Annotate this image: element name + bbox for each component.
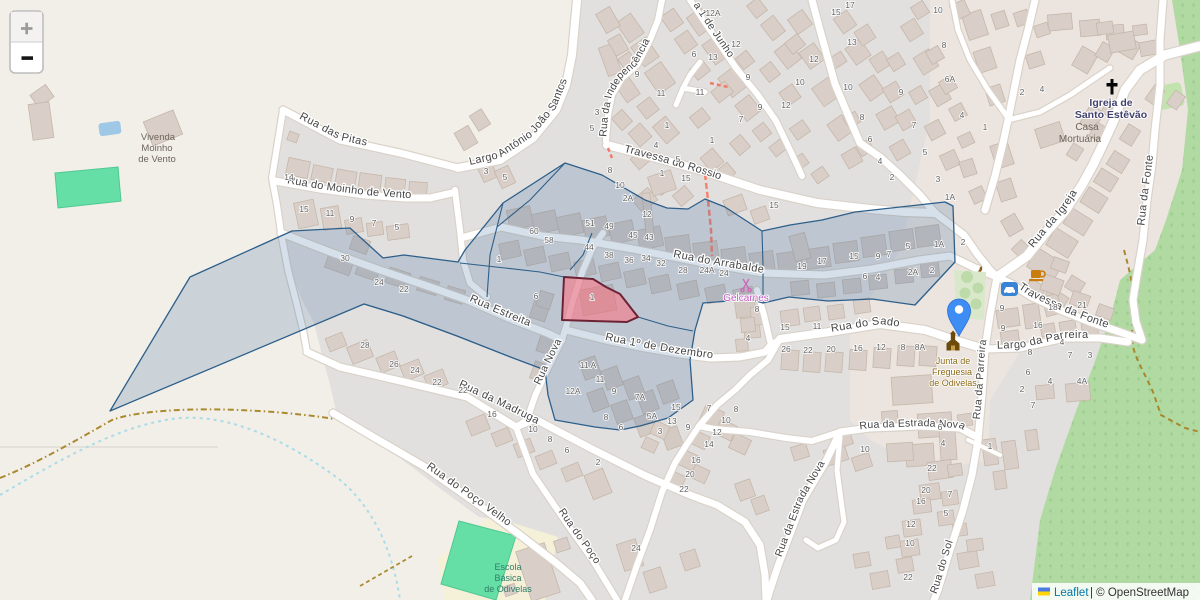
svg-text:10: 10 [615, 180, 625, 190]
svg-text:5: 5 [906, 241, 911, 251]
svg-text:6: 6 [868, 134, 873, 144]
svg-text:8: 8 [1028, 347, 1033, 357]
svg-text:1: 1 [590, 292, 595, 302]
svg-text:21: 21 [1077, 300, 1087, 310]
svg-text:7: 7 [1068, 350, 1073, 360]
svg-text:15: 15 [299, 204, 309, 214]
svg-text:6: 6 [565, 445, 570, 455]
svg-text:7A: 7A [635, 392, 646, 402]
svg-text:58: 58 [544, 235, 554, 245]
svg-text:1: 1 [665, 120, 670, 130]
svg-text:9: 9 [1001, 323, 1006, 333]
svg-text:34: 34 [641, 253, 651, 263]
svg-text:15: 15 [831, 7, 841, 17]
svg-text:12: 12 [906, 519, 916, 529]
svg-text:7: 7 [707, 403, 712, 413]
svg-text:9: 9 [746, 72, 751, 82]
svg-text:9: 9 [876, 251, 881, 261]
svg-text:10: 10 [860, 444, 870, 454]
svg-text:22: 22 [679, 484, 689, 494]
svg-text:16: 16 [487, 409, 497, 419]
svg-text:1: 1 [988, 441, 993, 451]
svg-text:11 A: 11 A [580, 360, 597, 370]
svg-text:11: 11 [326, 208, 335, 218]
svg-text:Igreja de: Igreja de [1089, 97, 1132, 109]
svg-text:10: 10 [905, 538, 915, 548]
svg-text:9: 9 [758, 102, 763, 112]
svg-text:5: 5 [395, 222, 400, 232]
svg-text:4: 4 [960, 110, 965, 120]
svg-text:2: 2 [1020, 384, 1025, 394]
svg-text:4: 4 [654, 140, 659, 150]
svg-text:de Odivelas: de Odivelas [929, 378, 977, 388]
svg-text:9: 9 [612, 386, 617, 396]
svg-text:15: 15 [849, 251, 859, 261]
svg-text:8: 8 [608, 165, 613, 175]
svg-text:4: 4 [941, 438, 946, 448]
svg-text:10: 10 [528, 424, 538, 434]
svg-text:7: 7 [948, 489, 953, 499]
svg-text:1: 1 [497, 254, 502, 264]
svg-text:8: 8 [755, 304, 760, 314]
svg-text:30: 30 [340, 253, 350, 263]
svg-text:4: 4 [746, 333, 751, 343]
svg-text:8: 8 [860, 112, 865, 122]
svg-text:5: 5 [944, 508, 949, 518]
svg-text:6: 6 [863, 271, 868, 281]
svg-text:12: 12 [712, 427, 722, 437]
svg-text:18: 18 [1048, 302, 1058, 312]
svg-text:17: 17 [845, 0, 855, 10]
svg-text:49: 49 [604, 221, 614, 231]
svg-text:5: 5 [590, 123, 595, 133]
svg-text:24: 24 [410, 365, 420, 375]
svg-text:9: 9 [899, 87, 904, 97]
svg-text:12: 12 [731, 39, 741, 49]
svg-text:4: 4 [876, 272, 881, 282]
svg-text:1: 1 [983, 122, 988, 132]
svg-text:2A: 2A [623, 193, 634, 203]
svg-text:15: 15 [671, 402, 681, 412]
svg-text:6: 6 [534, 291, 539, 301]
svg-text:22: 22 [458, 385, 468, 395]
svg-text:26: 26 [781, 344, 791, 354]
svg-text:| © OpenStreetMap: | © OpenStreetMap [1090, 587, 1189, 599]
svg-text:12: 12 [781, 100, 791, 110]
svg-text:Vivenda: Vivenda [141, 132, 176, 143]
svg-text:2: 2 [596, 457, 601, 467]
svg-text:13: 13 [708, 52, 718, 62]
svg-text:Básica: Básica [494, 573, 521, 583]
svg-text:19: 19 [797, 261, 807, 271]
svg-text:13: 13 [667, 416, 677, 426]
svg-text:1A: 1A [934, 239, 945, 249]
svg-text:3: 3 [595, 107, 600, 117]
svg-text:4: 4 [878, 156, 883, 166]
svg-text:22: 22 [399, 284, 409, 294]
svg-text:Santo Estêvão: Santo Estêvão [1075, 109, 1147, 121]
svg-text:Gelcarnes: Gelcarnes [723, 293, 769, 304]
svg-text:6: 6 [1026, 367, 1031, 377]
svg-text:5: 5 [676, 154, 681, 164]
svg-text:60: 60 [529, 226, 539, 236]
svg-text:8: 8 [604, 412, 609, 422]
svg-text:4: 4 [1048, 376, 1053, 386]
svg-text:10: 10 [721, 415, 731, 425]
svg-text:11: 11 [596, 374, 605, 384]
svg-text:2: 2 [890, 172, 895, 182]
svg-text:Junta de: Junta de [936, 356, 971, 366]
svg-text:17: 17 [817, 256, 827, 266]
svg-text:7: 7 [912, 120, 917, 130]
svg-text:Mortuária: Mortuária [1059, 134, 1102, 145]
svg-text:8: 8 [901, 342, 906, 352]
svg-text:8: 8 [942, 40, 947, 50]
svg-text:11: 11 [813, 321, 822, 331]
svg-text:12: 12 [876, 342, 886, 352]
svg-text:14: 14 [284, 172, 294, 182]
svg-text:10: 10 [843, 82, 853, 92]
svg-text:Moinho: Moinho [141, 143, 172, 154]
svg-text:20: 20 [685, 469, 695, 479]
svg-text:7: 7 [1031, 400, 1036, 410]
svg-text:9: 9 [1000, 303, 1005, 313]
svg-text:de Vento: de Vento [138, 154, 176, 165]
svg-text:24A: 24A [699, 265, 714, 275]
svg-text:22: 22 [803, 345, 813, 355]
svg-text:6: 6 [692, 49, 697, 59]
svg-text:28: 28 [678, 265, 688, 275]
svg-text:22: 22 [432, 377, 442, 387]
svg-text:16: 16 [916, 496, 926, 506]
svg-text:10: 10 [795, 77, 805, 87]
svg-text:12A: 12A [565, 386, 580, 396]
svg-text:4: 4 [1060, 337, 1065, 347]
svg-text:7: 7 [739, 114, 744, 124]
svg-text:43: 43 [644, 232, 654, 242]
svg-text:36: 36 [624, 255, 634, 265]
svg-text:6: 6 [619, 422, 624, 432]
svg-text:Escola: Escola [494, 562, 521, 572]
svg-text:8: 8 [734, 404, 739, 414]
svg-text:7: 7 [887, 249, 892, 259]
svg-text:11: 11 [657, 88, 666, 98]
svg-text:1: 1 [660, 168, 665, 178]
svg-text:24: 24 [719, 268, 729, 278]
svg-text:1: 1 [710, 135, 715, 145]
svg-text:12A: 12A [705, 8, 720, 18]
svg-text:20: 20 [921, 485, 931, 495]
svg-text:28: 28 [360, 340, 370, 350]
svg-text:12: 12 [809, 54, 819, 64]
svg-text:3: 3 [1088, 350, 1093, 360]
svg-text:32: 32 [656, 258, 666, 268]
svg-text:5: 5 [923, 147, 928, 157]
svg-text:1A: 1A [945, 192, 956, 202]
svg-text:6: 6 [938, 422, 943, 432]
svg-text:24: 24 [631, 543, 641, 553]
svg-text:3: 3 [484, 166, 489, 176]
svg-text:Casa: Casa [1075, 122, 1099, 133]
svg-text:15: 15 [780, 322, 790, 332]
svg-text:24: 24 [374, 277, 384, 287]
svg-text:7: 7 [372, 218, 377, 228]
svg-text:44: 44 [584, 242, 594, 252]
svg-text:5: 5 [503, 172, 508, 182]
svg-text:15: 15 [681, 173, 691, 183]
svg-text:4: 4 [1040, 84, 1045, 94]
svg-text:16: 16 [1033, 320, 1043, 330]
svg-text:51: 51 [585, 218, 595, 228]
svg-text:2A: 2A [908, 267, 919, 277]
svg-text:22: 22 [903, 572, 913, 582]
svg-text:15: 15 [769, 200, 779, 210]
svg-text:9: 9 [686, 422, 691, 432]
svg-text:8: 8 [548, 434, 553, 444]
svg-text:8A: 8A [915, 342, 926, 352]
svg-text:14: 14 [704, 439, 714, 449]
svg-text:5A: 5A [647, 411, 658, 421]
svg-text:13: 13 [847, 37, 857, 47]
svg-text:12: 12 [642, 209, 652, 219]
svg-text:Freguesia: Freguesia [932, 367, 972, 377]
svg-text:2: 2 [1020, 87, 1025, 97]
svg-text:3: 3 [936, 174, 941, 184]
svg-text:6A: 6A [945, 74, 956, 84]
svg-text:38: 38 [604, 250, 614, 260]
svg-text:16: 16 [691, 455, 701, 465]
svg-text:9: 9 [635, 69, 640, 79]
svg-text:Leaflet: Leaflet [1054, 587, 1089, 599]
svg-text:9: 9 [350, 214, 355, 224]
svg-text:10: 10 [933, 5, 943, 15]
svg-text:26: 26 [389, 359, 399, 369]
svg-text:2: 2 [930, 265, 935, 275]
svg-text:22: 22 [927, 463, 937, 473]
svg-text:de Odivelas: de Odivelas [484, 584, 532, 594]
svg-text:45: 45 [628, 230, 638, 240]
svg-text:3: 3 [658, 426, 663, 436]
svg-text:2: 2 [961, 237, 966, 247]
svg-text:20: 20 [826, 344, 836, 354]
svg-text:16: 16 [853, 343, 863, 353]
svg-text:11: 11 [696, 87, 705, 97]
svg-text:4A: 4A [1077, 376, 1088, 386]
